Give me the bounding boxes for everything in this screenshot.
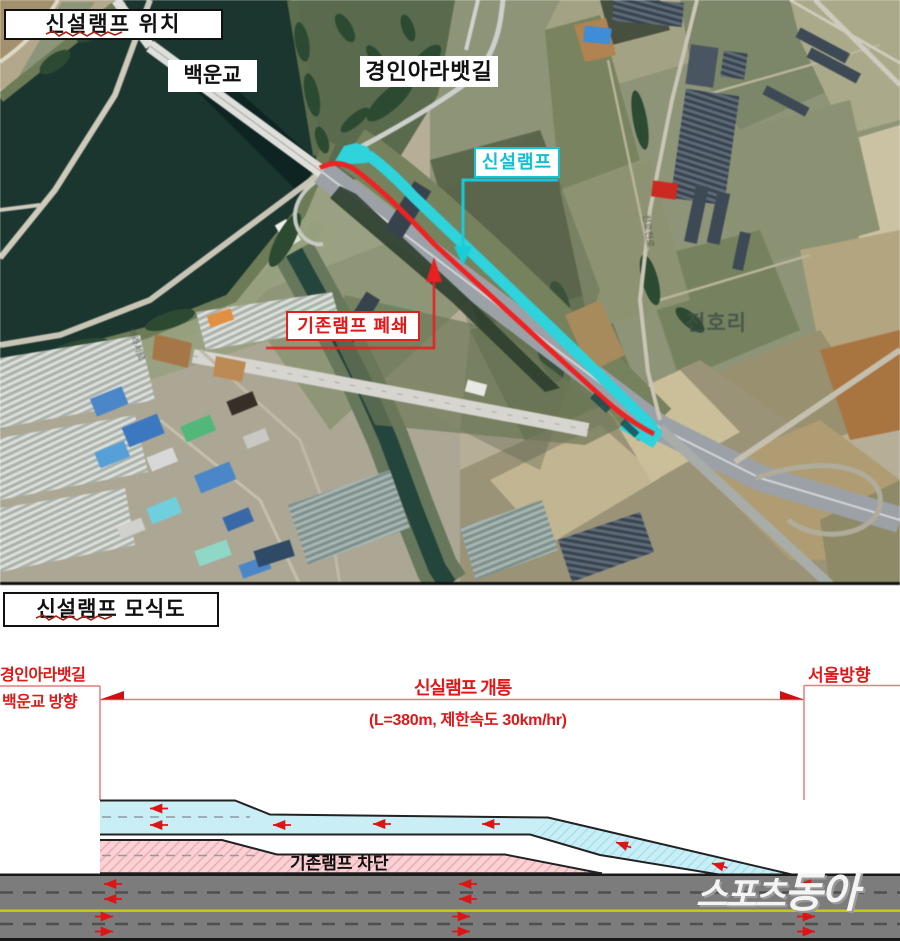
svg-text:전호리: 전호리 xyxy=(686,312,747,335)
svg-text:스포츠동아: 스포츠동아 xyxy=(696,869,864,916)
svg-text:기존램프 차단: 기존램프 차단 xyxy=(290,854,389,873)
